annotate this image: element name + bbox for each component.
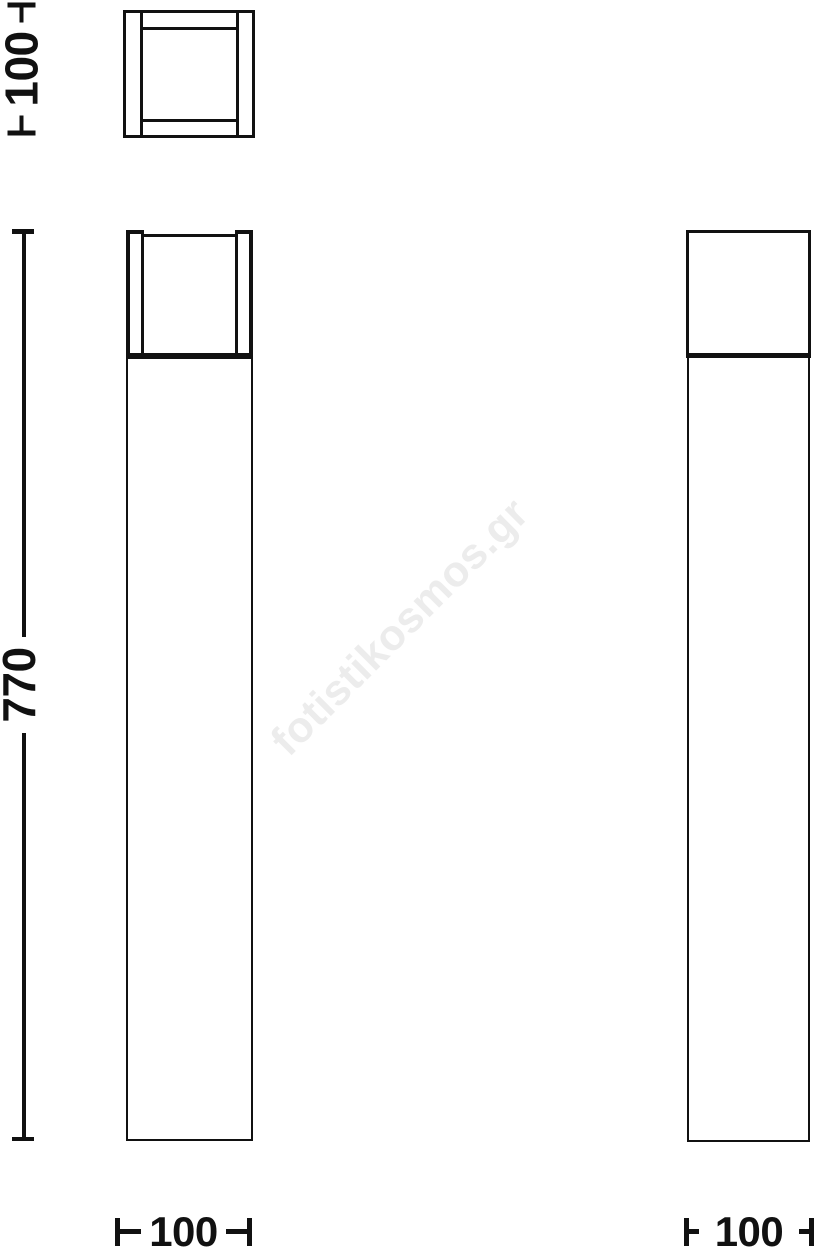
top-view-inner-line-bottom	[143, 119, 236, 122]
front-view-head-post-right	[235, 230, 253, 353]
front-view-head-post-left	[126, 230, 144, 353]
bollard-dimension-drawing: fotistikosmos.gr 100 770 100	[0, 0, 814, 1252]
dimension-tick	[7, 116, 37, 136]
watermark-text: fotistikosmos.gr	[223, 450, 577, 804]
dimension-tick	[226, 1217, 252, 1247]
dimension-plan-depth: 100	[0, 3, 44, 136]
dimension-side-width: 100	[684, 1210, 814, 1252]
dimension-height-tick-bottom	[12, 1137, 34, 1142]
dimension-plan-depth-value: 100	[0, 31, 45, 106]
top-view-inner-line-left	[140, 13, 143, 135]
side-view-body-outline	[687, 358, 811, 1142]
top-view-inner-line-top	[143, 27, 236, 30]
top-view-inner-line-right	[236, 13, 239, 135]
dimension-tick	[799, 1217, 814, 1247]
front-view-body-outline	[126, 359, 253, 1142]
front-view-head-top-line	[143, 234, 235, 238]
dimension-front-width-value: 100	[149, 1211, 218, 1252]
dimension-height-value: 770	[0, 647, 42, 722]
top-view-outline	[123, 10, 255, 138]
dimension-height-tick-top	[12, 229, 34, 234]
side-view-head-outline	[686, 230, 811, 353]
dimension-tick	[115, 1217, 141, 1247]
dimension-side-width-value: 100	[715, 1211, 784, 1252]
dimension-front-width: 100	[115, 1210, 252, 1252]
dimension-tick	[7, 3, 37, 23]
dimension-height: 770	[0, 637, 41, 733]
dimension-tick	[684, 1217, 699, 1247]
